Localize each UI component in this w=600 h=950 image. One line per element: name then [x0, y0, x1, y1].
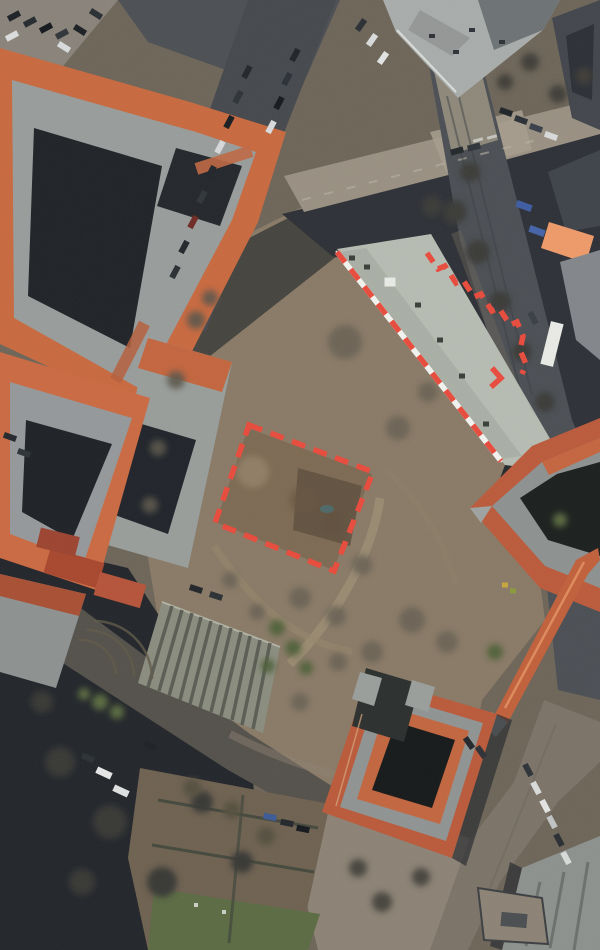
- aerial-photo-viewport: [0, 0, 600, 950]
- aerial-orthophoto: [0, 0, 600, 950]
- film-grain-overlay: [0, 0, 600, 950]
